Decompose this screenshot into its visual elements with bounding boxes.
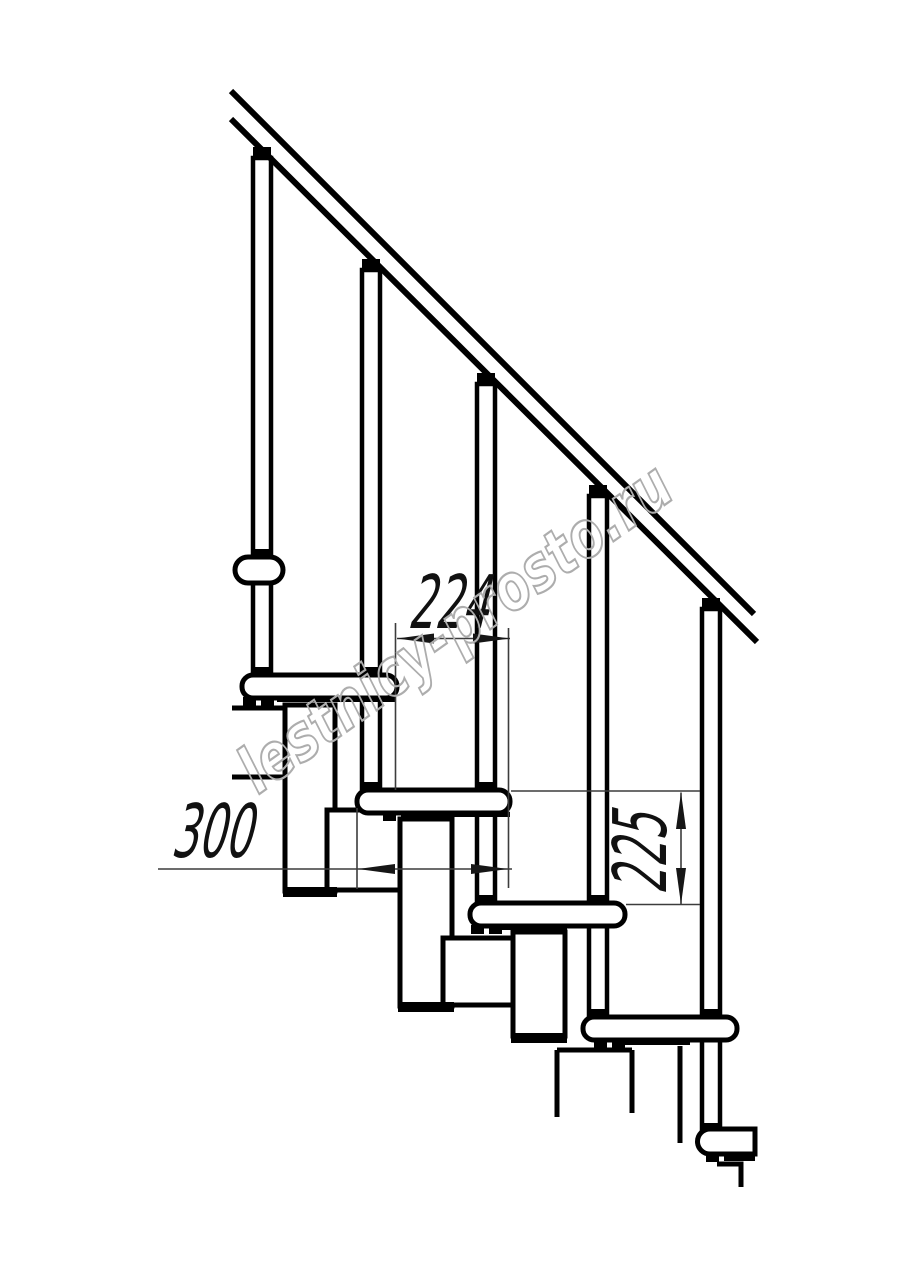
tread-4-underside: [620, 1040, 690, 1045]
joint: [476, 782, 496, 790]
column-3-base: [511, 1033, 567, 1043]
tread-5-underside: [724, 1153, 755, 1161]
tread-5-cut: [698, 1129, 756, 1154]
joint: [252, 667, 272, 675]
staircase-drawing: 224 300 225 lestnicy-prosto.ru: [0, 0, 914, 1280]
tread-3-underside: [502, 925, 567, 930]
tread-0-end-view: [235, 557, 283, 583]
tread-1-foot: [243, 697, 256, 706]
tread-2: [357, 790, 510, 813]
tread-5-foot: [706, 1153, 719, 1162]
tread-2-underside: [412, 812, 510, 817]
tread-4-foot: [594, 1040, 607, 1049]
joint: [252, 549, 272, 557]
tread-3-foot: [471, 925, 484, 934]
support-column-3: [513, 932, 565, 1036]
baluster-1: [253, 158, 271, 675]
column-2-base: [398, 1002, 454, 1012]
junction-box-2: [443, 938, 520, 1005]
joint: [588, 1009, 608, 1017]
joint: [476, 895, 496, 903]
joint: [361, 782, 381, 790]
dimension-225-label: 225: [598, 797, 684, 899]
joint: [701, 1123, 721, 1131]
column-1-base: [283, 887, 337, 897]
tread-3: [470, 903, 625, 926]
tread-3-foot: [489, 925, 502, 934]
cutoff-step-line: [717, 1164, 741, 1187]
tread-2-foot: [383, 812, 396, 821]
baluster-5: [702, 609, 720, 1131]
tread-4: [583, 1017, 737, 1040]
joint-details: [243, 147, 755, 1162]
joint: [588, 895, 608, 903]
watermark-text: lestnicy-prosto.ru: [224, 447, 687, 807]
staircase-drawing-page: 224 300 225 lestnicy-prosto.ru: [0, 0, 914, 1280]
dimension-300-label: 300: [166, 789, 268, 875]
joint: [701, 1009, 721, 1017]
junction-box-1: [327, 810, 405, 890]
tread-1-foot: [261, 697, 274, 706]
